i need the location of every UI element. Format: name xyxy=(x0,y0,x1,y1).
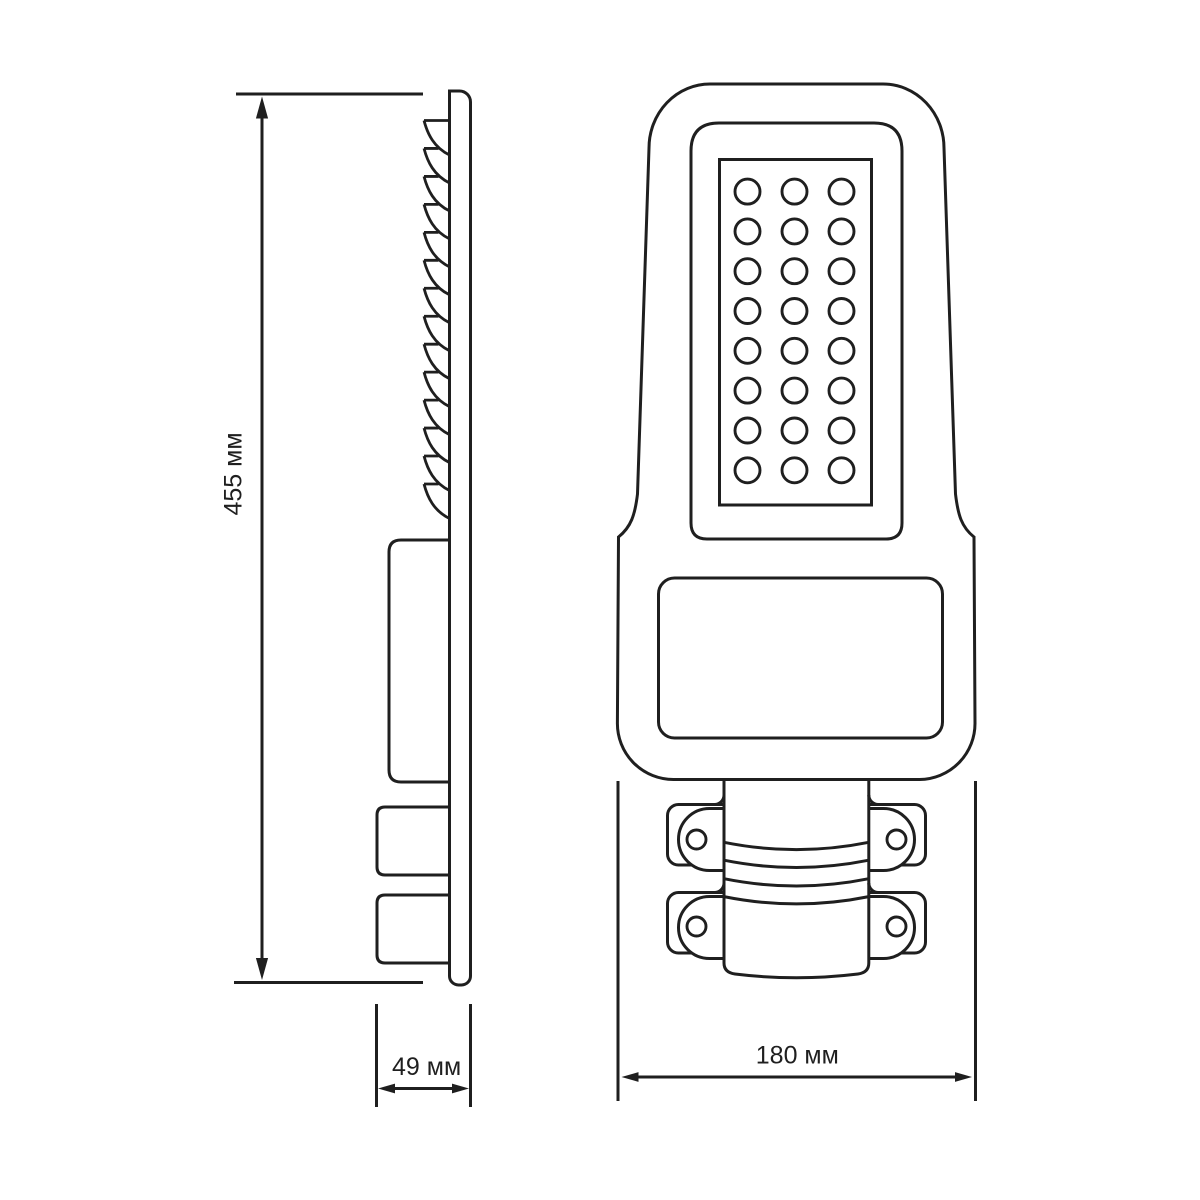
svg-text:49 мм: 49 мм xyxy=(392,1053,461,1081)
svg-text:180 мм: 180 мм xyxy=(756,1041,839,1069)
svg-text:455 мм: 455 мм xyxy=(220,432,248,515)
